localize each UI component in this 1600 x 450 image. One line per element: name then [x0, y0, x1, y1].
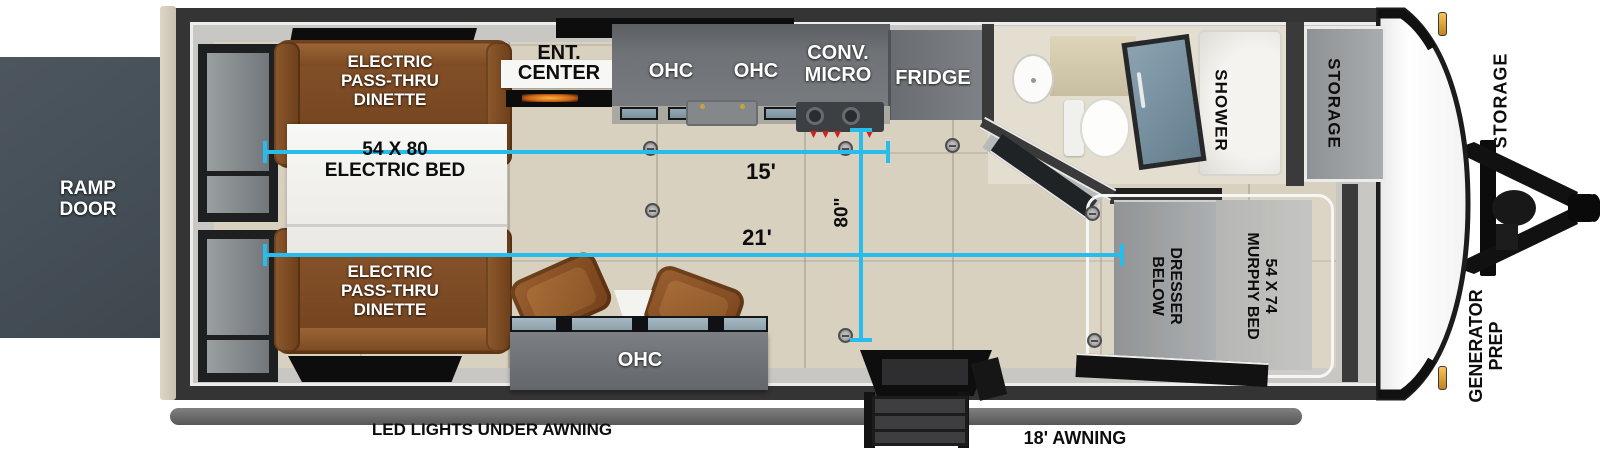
marker-light-icon: [1438, 12, 1447, 36]
bathroom-wall: [982, 22, 994, 126]
cabinet-glass: [620, 107, 658, 120]
dim-cap: [1120, 244, 1124, 266]
dresser-label: DRESSER BELOW: [1144, 201, 1184, 371]
awning-caption: 18' AWNING: [975, 428, 1175, 448]
recessed-light-icon: [945, 138, 960, 153]
bedroom-front-wall: [1342, 184, 1358, 382]
burner-icon: [806, 107, 824, 125]
dim-15ft-label: 15': [726, 160, 796, 185]
ramp-door-label: RAMP DOOR: [8, 178, 168, 221]
toilet: [1080, 98, 1130, 158]
dim-cap: [263, 141, 267, 163]
ent-center-label-line2: CENTER: [503, 62, 615, 84]
shower-door-handle: [1137, 72, 1146, 108]
recessed-light-icon: [1087, 333, 1102, 348]
dim-cap: [263, 244, 267, 266]
recessed-light-icon: [645, 203, 660, 218]
dinette-top-label: ELECTRIC PASS-THRU DINETTE: [295, 52, 485, 109]
dim-line-80in: [859, 130, 863, 342]
storage-interior-label: STORAGE: [1323, 39, 1344, 169]
faucet-icon: [740, 104, 745, 109]
ohc-bottom-label: OHC: [600, 349, 680, 371]
front-closet: [1304, 26, 1386, 182]
fireplace: [506, 90, 612, 107]
entry-steps: [872, 396, 968, 446]
ohc-left-label: OHC: [631, 60, 711, 82]
glass-divider: [632, 316, 648, 332]
faucet-icon: [700, 104, 705, 109]
floorplan-diagram: RAMP DOOR ELECTRIC PASS-THRU DINETTE ELE…: [0, 0, 1600, 450]
window: [198, 44, 278, 222]
dinette-bottom-label: ELECTRIC PASS-THRU DINETTE: [295, 262, 485, 319]
entry-step-recess: [882, 359, 968, 385]
dim-cap: [850, 128, 872, 132]
bathroom-sink: [1012, 54, 1054, 104]
dim-line-21ft: [265, 253, 1122, 257]
generator-prep-label: GENERATOR PREP: [1466, 262, 1522, 430]
slide-topper-bottom-left: [288, 356, 462, 382]
dim-cap: [850, 338, 872, 342]
led-lights-caption: LED LIGHTS UNDER AWNING: [342, 420, 642, 439]
murphy-bed-outline: [1086, 194, 1334, 378]
glass-divider: [708, 316, 724, 332]
kitchen-sink: [686, 100, 758, 126]
glass-divider: [556, 316, 572, 332]
fireplace-flame-icon: [522, 94, 578, 102]
shower-label: SHOWER: [1210, 41, 1231, 181]
awning-rail: [170, 408, 1302, 425]
burner-icon: [842, 107, 860, 125]
cabinet-glass: [510, 316, 768, 332]
storage-front-label: STORAGE: [1491, 36, 1512, 166]
recessed-light-icon: [1085, 206, 1100, 221]
electric-bed-label: 54 X 80 ELECTRIC BED: [300, 139, 490, 182]
bed-seam: [287, 224, 507, 227]
dim-cap: [886, 141, 890, 163]
drain-icon: [1031, 78, 1036, 83]
dinette-backrest: [280, 328, 506, 350]
fridge-label: FRIDGE: [883, 67, 983, 89]
conv-micro-label: CONV. MICRO: [783, 42, 893, 87]
closet-wall: [1286, 22, 1304, 186]
murphy-bed-label: 54 X 74 MURPHY BED: [1237, 201, 1279, 371]
dim-21ft-label: 21': [722, 226, 792, 251]
marker-light-icon: [1438, 366, 1447, 390]
dim-80in-label: 80": [832, 183, 853, 243]
